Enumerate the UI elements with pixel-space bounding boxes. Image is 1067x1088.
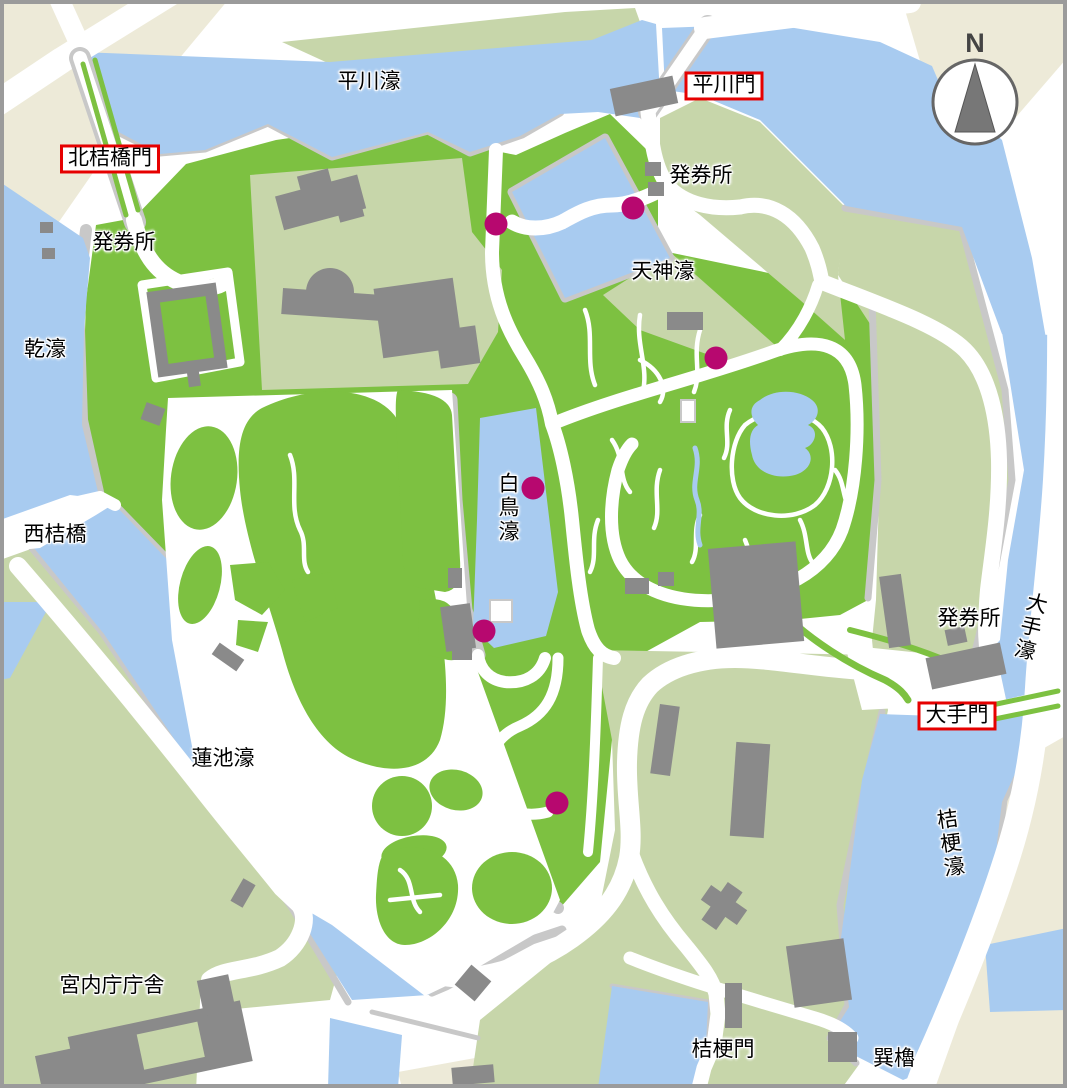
imperial-palace-east-gardens-map: N 平川濠平川門北桔橋門発券所発券所天神濠乾濠西桔橋白鳥濠発券所大手濠大手門桔梗… — [0, 0, 1067, 1088]
hirakawa-gate-label: 平川門 — [685, 71, 764, 100]
ticket-office-hirakawa-label: 発券所 — [670, 165, 733, 187]
kitahanebashi-gate-label: 北桔橋門 — [60, 144, 160, 173]
ote-moat-label: 大手濠 — [1010, 589, 1049, 664]
kunaicho-building-label: 宮内庁庁舎 — [60, 975, 165, 997]
checkpoint-dot — [622, 197, 645, 220]
nishihanebashi-bridge-label: 西桔橋 — [24, 524, 87, 546]
tatsumi-turret-label: 巽櫓 — [873, 1048, 915, 1070]
checkpoint-dot — [546, 792, 569, 815]
ticket-office-ote-label: 発券所 — [938, 608, 1001, 630]
ote-gate-label: 大手門 — [918, 701, 997, 730]
checkpoint-dot — [705, 347, 728, 370]
ticket-office-kitahanebashi-label: 発券所 — [93, 232, 156, 254]
checkpoint-dot — [473, 620, 496, 643]
hasuike-moat-label: 蓮池濠 — [192, 748, 255, 770]
tenjin-moat-label: 天神濠 — [632, 261, 695, 283]
checkpoint-dot — [522, 477, 545, 500]
inui-moat-label: 乾濠 — [24, 339, 66, 361]
checkpoint-dot — [485, 213, 508, 236]
labels-layer: 平川濠平川門北桔橋門発券所発券所天神濠乾濠西桔橋白鳥濠発券所大手濠大手門桔梗濠蓮… — [0, 0, 1067, 1088]
kikyo-gate-label: 桔梗門 — [692, 1039, 755, 1061]
kikyo-moat-label: 桔梗濠 — [933, 807, 965, 881]
hakucho-moat-label: 白鳥濠 — [496, 472, 518, 544]
hirakawa-moat-label: 平川濠 — [338, 71, 401, 93]
